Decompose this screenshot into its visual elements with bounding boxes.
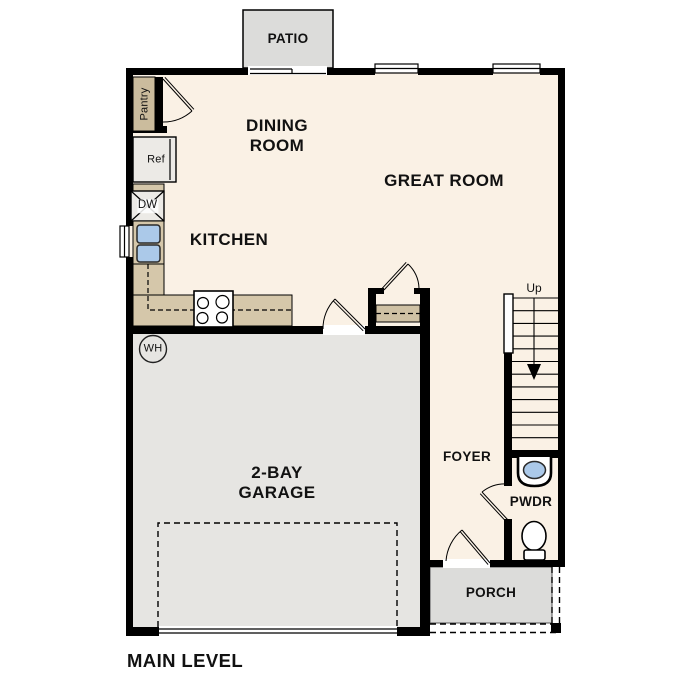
toilet-bowl	[522, 522, 546, 551]
room-label-dining: DINING ROOM	[246, 116, 308, 156]
kitchen-sink-basin	[137, 225, 160, 243]
room-label-foyer: FOYER	[443, 449, 491, 465]
room-label-garage: 2-BAY GARAGE	[238, 463, 315, 503]
vanity-basin	[524, 462, 546, 479]
kitchen-sink-basin	[137, 245, 160, 262]
dishwasher-label: DW	[137, 199, 158, 213]
stair-railing	[504, 294, 513, 353]
level-title: MAIN LEVEL	[127, 650, 243, 672]
pantry-label: Pantry	[139, 88, 152, 121]
stove	[194, 291, 233, 327]
water-heater-label: WH	[144, 343, 163, 356]
garage-door-opening	[159, 626, 397, 637]
room-label-great: GREAT ROOM	[384, 171, 504, 191]
floor-plan: PATIO DINING ROOM GREAT ROOM KITCHEN 2-B…	[0, 0, 687, 687]
room-label-patio: PATIO	[268, 31, 309, 47]
room-label-powder: PWDR	[510, 494, 552, 510]
floor-plan-drawing	[0, 0, 687, 687]
porch-post	[551, 623, 561, 633]
stairs-up-label: Up	[526, 281, 541, 295]
room-label-porch: PORCH	[466, 585, 516, 601]
room-label-kitchen: KITCHEN	[190, 230, 268, 250]
fridge-label: Ref	[147, 154, 165, 167]
toilet-tank	[524, 550, 545, 560]
closet-shelf	[376, 305, 420, 322]
